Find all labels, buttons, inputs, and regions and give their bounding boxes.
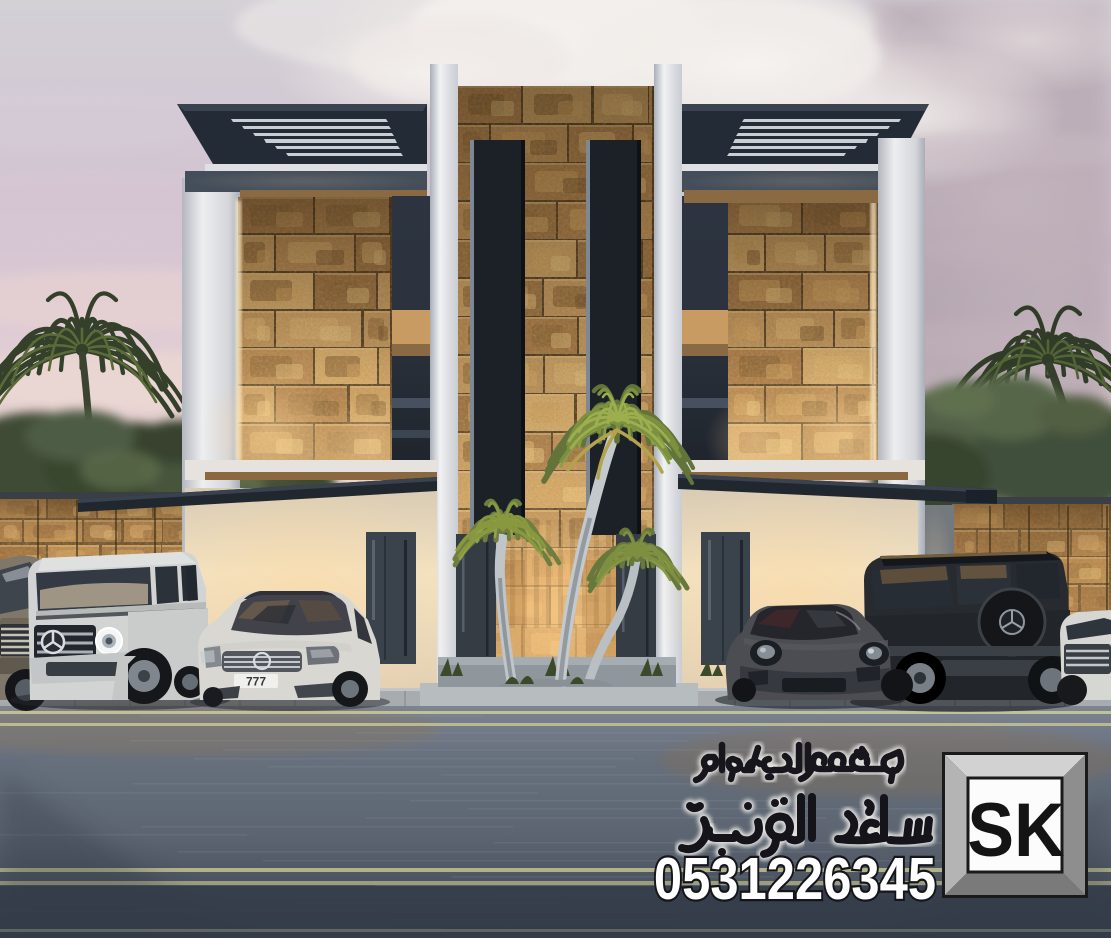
svg-text:SK: SK bbox=[967, 788, 1064, 872]
svg-text:0531226345: 0531226345 bbox=[654, 845, 936, 911]
svg-text:777: 777 bbox=[246, 675, 266, 689]
